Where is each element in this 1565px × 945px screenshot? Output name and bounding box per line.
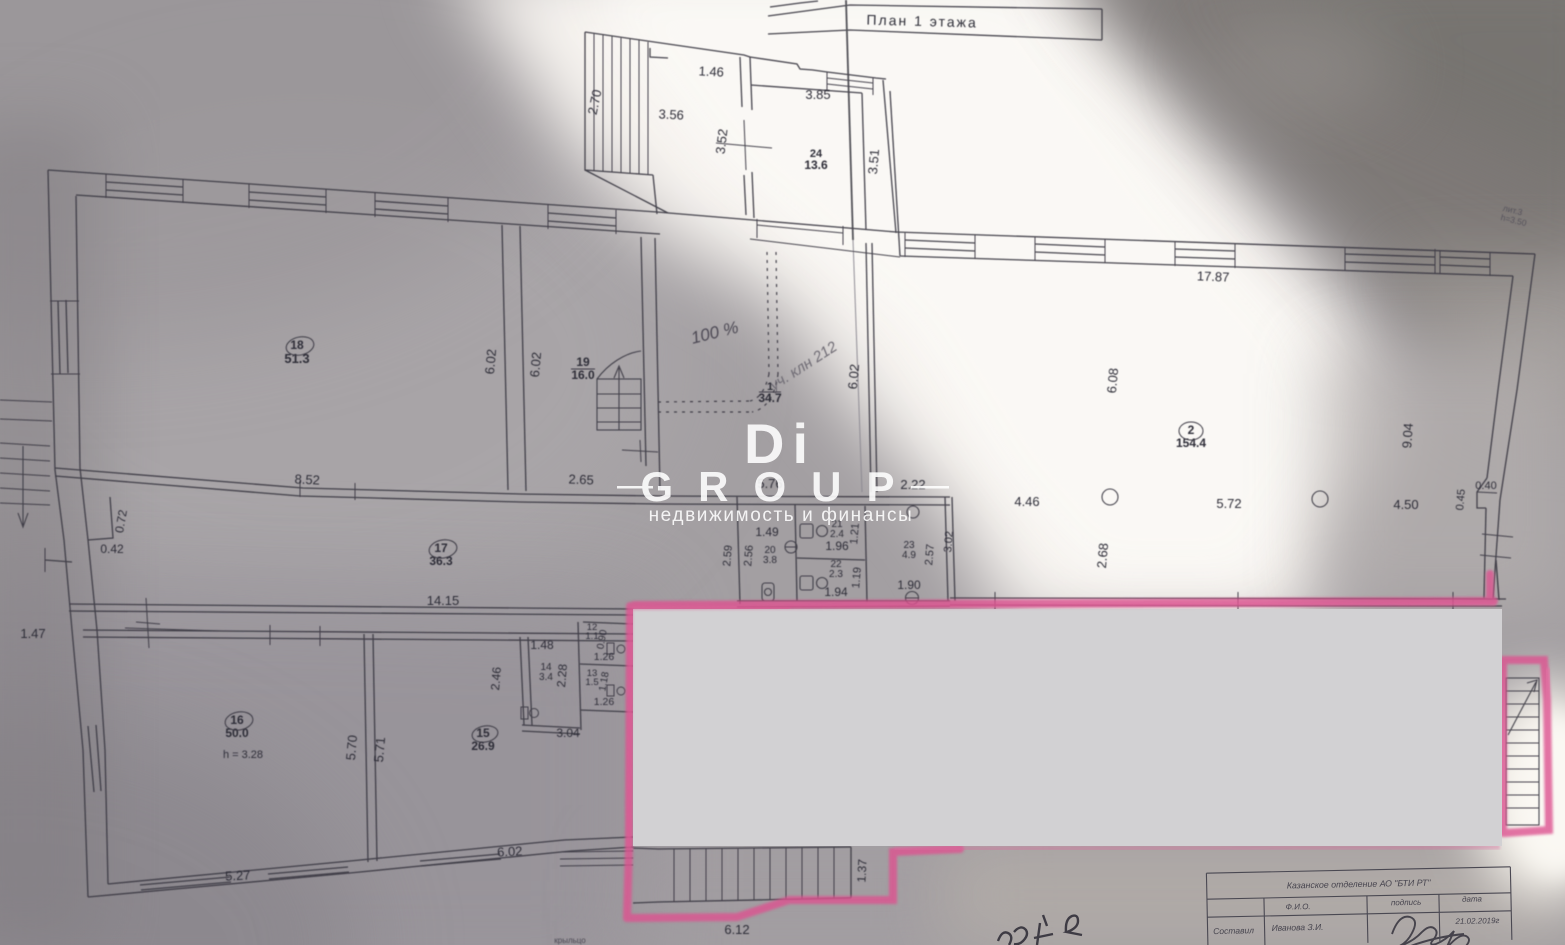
svg-text:подпись: подпись <box>1391 898 1422 908</box>
svg-text:недвижимость и финансы: недвижимость и финансы <box>649 505 914 526</box>
svg-text:21.02.2019г: 21.02.2019г <box>1454 916 1499 926</box>
svg-text:Казанское отделение АО "БТИ РТ: Казанское отделение АО "БТИ РТ" <box>1287 878 1432 891</box>
svg-text:Составил: Составил <box>1213 925 1254 936</box>
svg-text:GROUP: GROUP <box>640 463 919 510</box>
svg-text:Ф.И.О.: Ф.И.О. <box>1286 902 1311 912</box>
svg-text:Иванова З.И.: Иванова З.И. <box>1272 922 1324 933</box>
svg-text:дата: дата <box>1462 894 1483 903</box>
